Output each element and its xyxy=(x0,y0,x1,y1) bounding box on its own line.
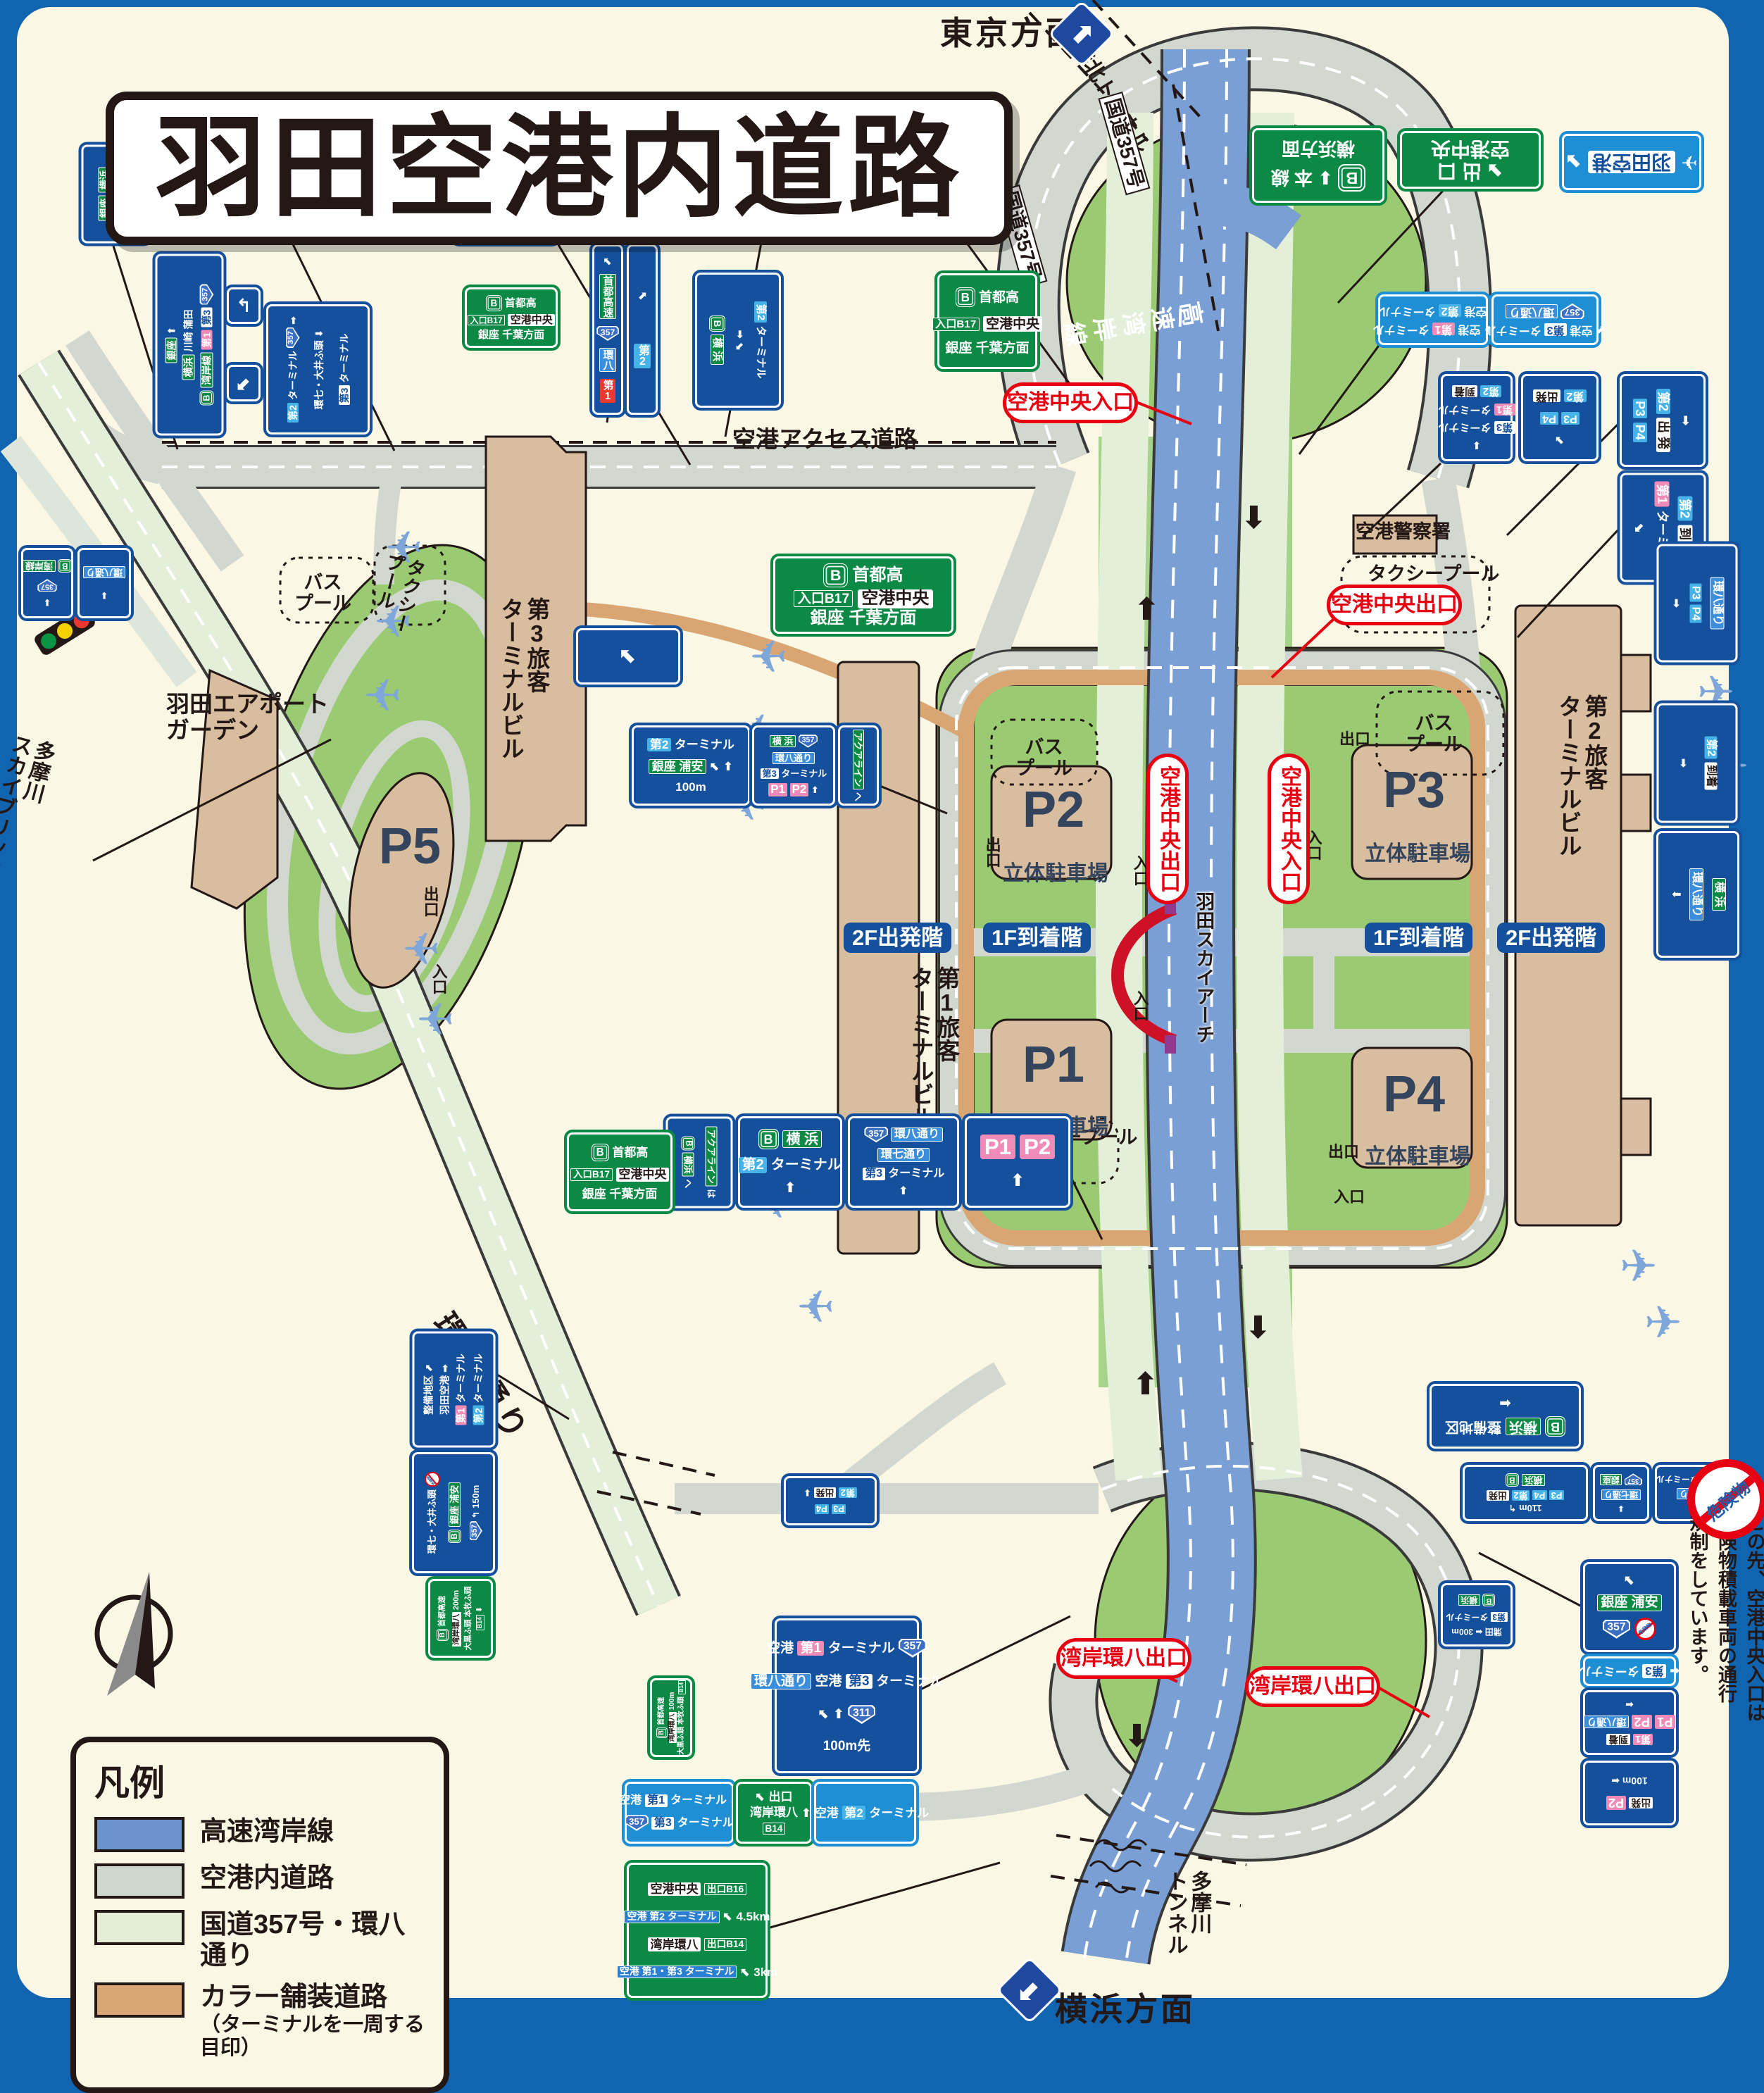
road-sign-kan8-p34-90: 環八通りP3P4➡ xyxy=(1656,544,1737,662)
sign-token: 川崎 蒲田 xyxy=(183,309,193,351)
sign-token: 100m先 xyxy=(823,1739,871,1753)
sign-row: ⬉ xyxy=(603,256,613,267)
road-sign-ginza-urayasu-100m: 第2ターミナル銀座 浦安⬉⬆100m xyxy=(632,725,750,806)
arrow-ur-icon: ⬈ xyxy=(637,291,646,302)
sign-token: 環七通り xyxy=(877,1148,929,1162)
sign-token: 入口B17 xyxy=(468,315,505,326)
road-sign-exit-kuko-chuo-180: ⬊出 口空港中央 xyxy=(1400,131,1541,189)
sign-row: 空港中央出口B16 xyxy=(648,1882,746,1896)
sign-token: 入口B17 xyxy=(932,318,980,331)
red-annotation-4: 湾岸環八出口 xyxy=(1056,1638,1191,1679)
sign-token: 第3 xyxy=(846,1674,872,1689)
sign-token: 環八通り xyxy=(1710,577,1724,628)
sign-row: ⬈ xyxy=(637,291,646,302)
sign-token: ターミナル xyxy=(670,1795,727,1806)
arrow-dr-icon: ⬊ xyxy=(1633,522,1646,532)
sign-token: 到着 xyxy=(1452,385,1478,397)
shuto-expressway-shield: B xyxy=(709,315,725,331)
map-label-p4-exit: 出口 xyxy=(1328,1144,1359,1161)
arrow-down-icon: ⬇ xyxy=(1618,1504,1625,1513)
sign-row: 横浜川崎 蒲田 xyxy=(182,309,194,380)
sign-row: 湾岸環八出口B14 xyxy=(648,1937,746,1951)
map-label-p3: P3 xyxy=(1383,762,1445,819)
map-label-access-road: 空港アクセス道路 xyxy=(732,427,917,453)
compass-icon xyxy=(97,1572,170,1696)
sign-token: 第2 xyxy=(1439,304,1461,317)
road-sign-t1t2-180: ⬇空港第1ターミナル空港第2ターミナル xyxy=(1378,294,1488,345)
sign-token: 空港 xyxy=(619,1795,642,1806)
sign-row: 110m↰ xyxy=(1508,1504,1541,1513)
sign-row: ⬇ xyxy=(1618,1504,1625,1513)
red-annotation-5: 湾岸環八出口 xyxy=(1245,1666,1380,1707)
sign-row: ⬆空港第2ターミナル xyxy=(801,1806,929,1819)
map-label-t2-building: 第2旅客 ターミナルビル xyxy=(1555,694,1607,857)
sign-row: 第2出 発 xyxy=(1656,389,1671,452)
sign-token: 環八通り xyxy=(1506,304,1557,318)
sign-token: 3km xyxy=(753,1966,777,1978)
hazmat-prohibition-icon: 危険物 xyxy=(1687,1459,1764,1539)
arrow-right-icon: ➡ xyxy=(1677,758,1688,767)
shuto-expressway-shield: B xyxy=(448,1530,462,1544)
road-sign-shuto-b17-a: B首都高入口B17空港中央銀座 千葉方面 xyxy=(567,1132,673,1211)
shuto-expressway-shield: B xyxy=(956,287,975,307)
map-label-yokohama: 横浜方面 xyxy=(1055,1992,1196,2028)
sign-row: 第2到着 xyxy=(1704,736,1717,789)
sign-token: 大黒ふ頭 本牧ふ頭 xyxy=(678,1697,685,1755)
arrow-ul-icon: ⬉ xyxy=(756,1791,765,1803)
sign-token: 第1 xyxy=(1633,1734,1653,1745)
sign-token: 羽田空港 xyxy=(1588,151,1675,173)
sign-row: 環八通り xyxy=(1710,577,1724,628)
sign-token: 第1 xyxy=(1432,323,1455,335)
route-357-shield: 357 xyxy=(199,284,213,304)
sign-token: 環七・大井ふ頭 xyxy=(314,340,324,409)
sign-row: P3P4 xyxy=(1689,583,1702,622)
shuto-expressway-shield: B xyxy=(1338,164,1365,192)
red-annotation-0: 空港中央入口 xyxy=(1003,382,1138,423)
airplane-icon: ✈ xyxy=(1681,152,1697,172)
sign-token: P3 xyxy=(832,1504,846,1514)
arrow-down-icon: ⬇ xyxy=(314,330,324,338)
sign-token: 4.5km xyxy=(736,1911,770,1923)
sign-token: 空港 xyxy=(815,1675,842,1688)
sign-token: ターミナル xyxy=(1438,422,1491,432)
sign-token: P4 xyxy=(1540,412,1558,425)
arrow-dl-icon: ⬋ xyxy=(1596,324,1605,335)
sign-row: 首都高速 xyxy=(599,274,616,319)
sign-row: 銀座 浦安⬉⬆ xyxy=(649,759,733,774)
sign-token: 環八通り xyxy=(772,752,815,764)
sign-token: P4 xyxy=(1689,604,1702,622)
road-sign-p34-dep-180: ⬊P3P4第2出発 xyxy=(1521,374,1599,461)
shuto-expressway-shield: B xyxy=(486,295,501,311)
road-sign-kan8-180: ⬇環八通り xyxy=(77,548,131,618)
sign-row: B湾岸線 xyxy=(23,559,72,573)
arrow-ut-icon: ↰ xyxy=(236,296,251,315)
sign-row: P1P2⬆ xyxy=(768,783,819,796)
sign-row: P3P4第2出発 xyxy=(1487,1490,1564,1501)
arrow-down-icon: ⬇ xyxy=(476,1606,484,1613)
sign-row: 空港 第1・第3 ターミナル⬉3km xyxy=(617,1966,778,1978)
sign-token: 湾岸線 xyxy=(200,352,213,387)
sign-row: 357環八通り xyxy=(1506,304,1584,319)
sign-token: 首都高速 xyxy=(658,1697,665,1725)
road-sign-arrivals-col-180: ⬇第3ターミナル第1ターミナル第2到着 xyxy=(1441,374,1513,461)
sign-token: 第1 xyxy=(455,1405,466,1425)
route-357-shield: 357 xyxy=(799,735,818,747)
road-sign-aqualine-narrow: アクアラインへ xyxy=(838,725,879,806)
map-label-p2-in: 入口 xyxy=(1131,855,1149,886)
road-sign-kan7-ginza-180: ⬇環七通り357銀座 xyxy=(1593,1465,1649,1521)
sign-token: 出発 xyxy=(1533,389,1560,402)
arrow-down-icon: ⬇ xyxy=(1318,168,1333,187)
sign-row: 環七通り xyxy=(877,1148,929,1162)
sign-token: 第1 xyxy=(1494,404,1515,416)
sign-token: 第3 xyxy=(1491,1612,1508,1622)
sign-token: 100m xyxy=(1622,1776,1648,1786)
sign-token: は xyxy=(706,1189,715,1198)
sign-token: 銀座 千葉方面 xyxy=(811,610,917,627)
floor-badge-0: 2F出発階 xyxy=(844,923,951,953)
sign-token: ターミナル xyxy=(876,1675,943,1688)
sign-row: 100m⬅ xyxy=(1611,1776,1647,1786)
arrow-ur-icon: ⬈ xyxy=(423,1364,433,1373)
legend-item-0: 高速湾岸線 xyxy=(94,1817,425,1852)
sign-row: B横 浜 xyxy=(709,315,725,364)
sign-token: 第2 xyxy=(755,301,767,323)
road-sign-yokohama-kan8-t3-p12: 横 浜357環八通り第3ターミナルP1P2⬆ xyxy=(752,725,835,806)
svg-text:✈: ✈ xyxy=(363,670,401,721)
legend-items: 高速湾岸線空港内道路国道357号・環八通りカラー舗装道路（ターミナルを一周する目… xyxy=(94,1817,425,2061)
road-sign-t1-arrival-180: 第1到着P1P2環八通り⬅ xyxy=(1583,1690,1676,1755)
map-label-p3-exit: 出口 xyxy=(1339,731,1370,749)
sign-row: P3P4 xyxy=(815,1504,846,1514)
sign-token: 第3 xyxy=(1494,421,1515,433)
arrow-up-icon: ⬆ xyxy=(784,1181,796,1195)
sign-row: B横 浜 xyxy=(758,1129,822,1149)
sign-token: 横浜 xyxy=(1458,1594,1480,1606)
route-357-shield: 357 xyxy=(625,1815,649,1830)
sign-token: 銀座 千葉方面 xyxy=(945,342,1029,355)
legend-item-3: カラー舗装道路（ターミナルを一周する目印） xyxy=(94,1982,425,2060)
arrow-dl-icon: ⬋ xyxy=(236,374,251,392)
sign-token: 第1 xyxy=(645,1794,668,1807)
sign-token: ターミナル xyxy=(756,326,766,379)
legend-label: カラー舗装道路（ターミナルを一周する目印） xyxy=(200,1982,425,2060)
sign-token: 110m xyxy=(1519,1504,1542,1513)
sign-row: ⬉ xyxy=(1624,1574,1635,1587)
sign-row: ⬉ xyxy=(619,646,637,667)
sign-token: 第1 xyxy=(201,330,212,349)
arrow-left-icon: ⬅ xyxy=(1475,1627,1482,1636)
sign-row: B首都高速 xyxy=(437,1596,449,1641)
road-sign-yokohama-110m-180: 110m↰P3P4第2出発横浜B xyxy=(1463,1465,1588,1521)
map-label-bus-pool-2: バス プール xyxy=(1406,713,1463,755)
legend-swatch xyxy=(94,1863,184,1899)
road-sign-shuto-b17-b: B首都高入口B17空港中央銀座 千葉方面 xyxy=(773,556,953,634)
road-sign-haneda-airport-180: ✈羽田空港⬊ xyxy=(1562,134,1701,190)
sign-row: ⬆ xyxy=(1011,1173,1025,1189)
sign-token: 空港 xyxy=(1464,305,1487,316)
sign-token: 第1 xyxy=(797,1641,824,1656)
sign-row: 100m先 xyxy=(823,1739,871,1753)
sign-token: 到着 xyxy=(1606,1734,1630,1745)
sign-token: 本 線 xyxy=(1271,168,1313,187)
sign-token: ターミナル xyxy=(1485,324,1541,335)
haneda-airport-road-map: { "title": "羽田空港内道路", "legend": { "title… xyxy=(0,0,1764,2028)
sign-token: 首都高速 xyxy=(599,274,616,319)
sign-token: ターミナル xyxy=(677,1818,734,1829)
sign-token: へ xyxy=(683,1179,692,1188)
sign-row: B首都高速 xyxy=(656,1697,668,1738)
sign-token: 第2 xyxy=(839,1487,857,1498)
sign-row: ➡ xyxy=(1677,758,1688,767)
sign-row: 横 浜357 xyxy=(770,735,818,747)
sign-token: 200m xyxy=(453,1590,461,1610)
sign-token: 第2 xyxy=(287,403,299,423)
road-sign-aqualine-yokohama-90: アクアラインはB横浜へ xyxy=(665,1116,732,1208)
sign-row: ⬇ xyxy=(44,598,51,607)
sign-token: P1 xyxy=(768,783,787,796)
sign-token: ターミナル xyxy=(288,351,298,400)
legend-swatch xyxy=(94,1817,184,1852)
sign-token: 100m xyxy=(675,781,706,793)
sign-row: B湾岸線第1第3357 xyxy=(199,284,214,405)
sign-row: 空港第1ターミナル⬈ xyxy=(619,1794,739,1807)
sign-token: P4 xyxy=(1633,423,1647,443)
sign-row: 第2ターミナル xyxy=(755,301,767,378)
sign-token: ターミナル xyxy=(771,1158,842,1172)
sign-token: 出口B16 xyxy=(704,1883,746,1895)
shuto-expressway-shield: B xyxy=(823,563,847,587)
arrow-dr-icon: ⬊ xyxy=(1555,435,1564,446)
arrow-down-icon: ⬇ xyxy=(1472,439,1482,450)
road-sign-green-distance: 空港中央出口B16空港 第2 ターミナル⬉4.5km湾岸環八出口B14空港 第1… xyxy=(627,1863,768,1998)
shuto-expressway-shield: B xyxy=(1545,1416,1565,1437)
sign-token: 銀座 xyxy=(1600,1474,1622,1485)
sign-token: 湾岸線 xyxy=(23,560,56,572)
sign-row: ⬉⬆311 xyxy=(818,1705,875,1724)
arrow-right-icon: ➡ xyxy=(439,1364,449,1373)
route-357-shield: 357 xyxy=(1560,304,1584,319)
sign-row: ⬊出 口 xyxy=(1437,161,1503,181)
arrow-left-icon: ⬅ xyxy=(1625,1700,1634,1710)
sign-token: 第2 xyxy=(1704,736,1717,758)
map-label-p5-exit: 出口 xyxy=(421,886,439,917)
sign-token: 第2 xyxy=(647,738,671,751)
sign-token: P3 xyxy=(1549,1490,1564,1500)
road-sign-t2-dep-90: ➡第2出 発P3P4 xyxy=(1620,374,1706,467)
sign-row: ➡⬊ xyxy=(734,330,745,350)
shuto-expressway-shield: B xyxy=(681,1136,695,1150)
sign-row: ⬅ xyxy=(1499,1396,1511,1410)
road-sign-upleft-ramp: ⬉ xyxy=(576,628,680,685)
hazmat-prohibition-icon: 危険物 xyxy=(1634,1618,1657,1640)
sign-token: 空港中央 xyxy=(1431,139,1510,158)
sign-row: 横 浜 xyxy=(1712,878,1726,910)
sign-token: 第2 xyxy=(1677,496,1692,521)
sign-token: 第1 xyxy=(1655,481,1670,506)
road-sign-t2-arr-right-90: 第2到着➡ xyxy=(1656,703,1737,823)
arrow-down-icon: ⬇ xyxy=(803,1488,811,1497)
sign-token: へ xyxy=(854,792,863,801)
sign-row: 銀座⬆ xyxy=(165,326,177,363)
sign-token: B14 xyxy=(476,1615,484,1630)
sign-token: 第3 xyxy=(201,307,212,327)
sign-row: 第2出発 xyxy=(1533,389,1586,402)
sign-token: 第2 xyxy=(634,344,650,368)
sign-row: B横浜へ xyxy=(681,1136,695,1188)
sign-token: アクアライン xyxy=(705,1126,717,1186)
sign-token: 150m xyxy=(471,1485,480,1508)
sign-row: 横浜B xyxy=(1506,1473,1546,1487)
arrow-up-icon: ⬆ xyxy=(723,761,733,773)
arrow-ut-icon: ↰ xyxy=(471,1511,480,1519)
sign-token: 入口B17 xyxy=(794,590,853,607)
road-sign-small-branch: ⬋ xyxy=(227,365,261,401)
sign-row: B14⬇ xyxy=(476,1606,484,1630)
sign-token: 第3 xyxy=(339,385,350,405)
sign-row: ⬇ xyxy=(1670,889,1681,899)
sign-token: 銀座 浦安 xyxy=(449,1482,461,1527)
svg-text:✈: ✈ xyxy=(749,632,787,682)
road-sign-yokohama-kan8-90: 横 浜環八通り⬇ xyxy=(1656,831,1739,958)
sign-row: P3P4 xyxy=(1540,412,1579,425)
sign-row: 環七通り xyxy=(1601,1489,1640,1501)
sign-row: ⬉出口 xyxy=(756,1791,793,1803)
arrow-up-icon: ⬆ xyxy=(899,1186,908,1197)
sign-row: 357危険物 xyxy=(1603,1618,1657,1640)
sign-token: 銀座 浦安 xyxy=(649,759,706,774)
sign-token: 湾岸環八 xyxy=(648,1937,701,1951)
sign-token: 第2 xyxy=(1480,385,1501,397)
sign-row: ⬅第3ターミナル xyxy=(1580,1664,1680,1677)
sign-token: 横浜方面 xyxy=(1282,139,1355,158)
sign-token: 空港中央 xyxy=(616,1168,669,1181)
shuto-expressway-shield: B xyxy=(1506,1473,1520,1487)
arrow-dr-icon: ⬊ xyxy=(1487,161,1503,181)
sign-token: 首都高 xyxy=(612,1147,648,1158)
sign-token: 湾岸環八 xyxy=(669,1712,677,1743)
sign-token: 出発 xyxy=(1487,1490,1509,1501)
sign-token: 環八通り xyxy=(1689,868,1703,920)
sign-row: アクアラインへ xyxy=(853,730,865,801)
svg-text:✈: ✈ xyxy=(1644,1297,1682,1348)
sign-row: 入口B17空港中央 xyxy=(794,589,932,608)
sign-token: 出 発 xyxy=(1656,418,1671,452)
sign-token: P1 xyxy=(980,1135,1015,1158)
route-357-shield: 357 xyxy=(286,327,300,348)
sign-token: 空港中央 xyxy=(858,589,933,608)
arrow-ul-icon: ⬉ xyxy=(603,256,613,267)
road-sign-small-uturn: ↰ xyxy=(227,287,261,324)
hazmat-restriction-note: この先、空港中央入口は 危険物積載車両の通行 規制をしています。 xyxy=(1683,1513,1764,1794)
sign-row: 357 xyxy=(596,326,619,341)
sign-token: P2 xyxy=(1606,1796,1627,1810)
shuto-expressway-shield: B xyxy=(199,390,214,405)
sign-row: 出発P2 xyxy=(1606,1796,1653,1810)
road-sign-lane-right: ⬈第2 xyxy=(627,244,658,415)
sign-token: 第1 xyxy=(600,379,615,403)
red-annotation-3: 空港中央入口 xyxy=(1268,754,1310,904)
arrow-up-icon: ⬆ xyxy=(833,1708,844,1721)
route-357-shield: 357 xyxy=(1603,1620,1631,1639)
sign-token: 第3 xyxy=(1544,323,1567,336)
sign-token: 大黒ふ頭 本牧ふ頭 xyxy=(465,1586,473,1650)
sign-token: 横浜 xyxy=(682,1152,694,1176)
sign-token: 湾岸環八 xyxy=(750,1806,798,1818)
road-sign-kan7-ginza-150m-90: 環七・大井ふ頭危険物B銀座 浦安357↰150m xyxy=(412,1452,495,1573)
route-357-shield: 357 xyxy=(864,1127,888,1142)
sign-row: 第2ターミナル xyxy=(473,1354,484,1425)
sign-row: 第1ターミナル xyxy=(1438,404,1515,416)
road-sign-shuto-b17-c: B首都高入口B17空港中央銀座 千葉方面 xyxy=(937,273,1037,369)
sign-token: ターミナル xyxy=(1380,305,1436,316)
legend-label: 高速湾岸線 xyxy=(200,1817,334,1848)
floor-badge-1: 1F到着階 xyxy=(983,923,1091,953)
legend-swatch xyxy=(94,1910,184,1945)
sign-token: 空港 xyxy=(1458,323,1481,335)
arrow-ul-icon: ⬉ xyxy=(619,646,637,667)
map-label-p2-sub: 立体駐車場 xyxy=(1003,862,1108,886)
sign-token: P2 xyxy=(1632,1715,1652,1729)
road-sign-t3-kan8-180: ⬋空港第3ターミナル357環八通り xyxy=(1491,294,1599,345)
sign-token: 空港 xyxy=(767,1642,794,1655)
sign-token: 整備地区 xyxy=(1445,1420,1501,1434)
sign-row: 大黒ふ頭 本牧ふ頭 xyxy=(465,1586,473,1650)
route-357-shield: 357 xyxy=(1625,1473,1642,1485)
sign-token: P3 xyxy=(1689,583,1702,601)
road-sign-t2-kan7-90: 第2ターミナル357➡環七・大井ふ頭⬇第3ターミナル xyxy=(266,304,370,435)
map-label-tamagawa-tunnel: 多摩川 トンネル xyxy=(1163,1870,1211,1955)
sign-row: 357環八通り xyxy=(864,1127,942,1142)
sign-token: 環八通り xyxy=(891,1127,942,1142)
sign-row: 第3ターミナル xyxy=(1438,421,1515,433)
road-sign-t3-left-180: ⬅第3ターミナル xyxy=(1583,1656,1676,1686)
sign-row: 入口B17空港中央 xyxy=(932,316,1043,332)
sign-row: 整備地区⬈ xyxy=(423,1364,433,1415)
sign-token: 銀座 千葉方面 xyxy=(478,330,544,340)
sign-row: 357銀座 xyxy=(1600,1473,1642,1485)
sign-token: ターミナル xyxy=(828,1642,895,1655)
sign-row: ⬆ xyxy=(899,1186,908,1197)
map-label-airport-garden: 羽田エアポート ガーデン xyxy=(166,692,329,744)
road-sign-shuto-b17-d: B首都高入口B17空港中央銀座 千葉方面 xyxy=(465,287,558,348)
sign-token: 環八通り xyxy=(83,566,125,578)
sign-row: 空港 第2 ターミナル⬉4.5km xyxy=(624,1911,770,1923)
road-sign-t2-up-bottom: ⬆空港第2ターミナル xyxy=(814,1782,916,1844)
sign-token: 首都高 xyxy=(505,298,537,308)
arrow-right-icon: ➡ xyxy=(1670,598,1681,607)
arrow-ut-icon: ↰ xyxy=(1508,1504,1516,1513)
svg-text:⬇: ⬇ xyxy=(1245,1311,1271,1345)
road-sign-yokohama-t2-up: B横 浜第2ターミナル⬆ xyxy=(738,1116,842,1208)
sign-token: 空港 xyxy=(1570,324,1593,335)
arrow-dr-icon: ⬊ xyxy=(1566,152,1582,172)
sign-row: ⬊ xyxy=(1555,435,1564,446)
sign-row: 第3ターミナル xyxy=(1446,1612,1507,1622)
map-label-p4: P4 xyxy=(1383,1066,1445,1123)
sign-row: 大黒ふ頭 本牧ふ頭B14 xyxy=(678,1680,686,1755)
sign-row: 第2ターミナル357➡ xyxy=(286,316,300,423)
road-sign-wangan-kan8-green-90: B首都高速湾岸環八200m大黒ふ頭 本牧ふ頭B14⬇ xyxy=(428,1579,493,1658)
map-label-p5-in: 入口 xyxy=(430,963,447,994)
route-357-shield: 357 xyxy=(596,326,619,341)
sign-token: 300m xyxy=(1451,1627,1473,1636)
sign-row: 第1到着 xyxy=(1606,1734,1653,1745)
map-label-airport-police: 空港警察署 xyxy=(1356,521,1451,542)
sign-token: B14 xyxy=(678,1680,686,1694)
